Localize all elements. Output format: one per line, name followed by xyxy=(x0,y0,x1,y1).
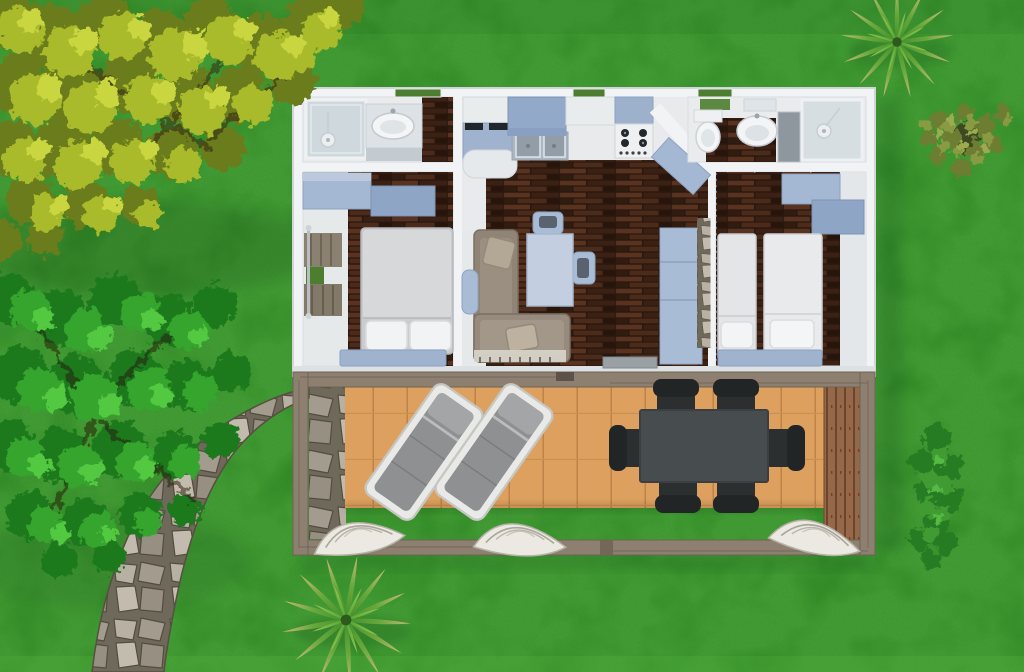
shower-divider xyxy=(778,112,800,162)
tall-cabinet-fridge xyxy=(660,228,702,364)
stove xyxy=(615,124,653,158)
kitchen-living xyxy=(462,97,712,368)
bed-bench-twin xyxy=(718,350,822,366)
doormat xyxy=(603,357,657,368)
window-bath-right xyxy=(698,89,732,97)
privacy-screen xyxy=(824,380,862,540)
window-kitchen xyxy=(573,89,605,97)
bedroom-master xyxy=(303,172,453,366)
double-bed xyxy=(361,228,453,354)
bathroom-left xyxy=(303,97,453,162)
bedroom-twin xyxy=(716,172,866,366)
bathroom-right xyxy=(688,97,866,162)
kitchen-sink xyxy=(512,132,568,160)
dining-table-outdoor xyxy=(640,410,768,482)
house xyxy=(293,88,875,376)
bathroom-sink xyxy=(366,104,422,161)
single-bed-2 xyxy=(764,234,822,360)
shower xyxy=(306,100,366,158)
pergola-post xyxy=(600,540,613,555)
toilet xyxy=(694,110,722,152)
stone-accent-wall xyxy=(697,218,711,348)
aerial-floor-plan-scene xyxy=(0,0,1024,672)
single-bed-1 xyxy=(718,234,756,360)
floor-plan-canvas xyxy=(0,0,1024,672)
side-shelf xyxy=(462,270,478,314)
bed-bench xyxy=(340,350,446,366)
terrace-step xyxy=(556,372,574,381)
shower-right xyxy=(802,100,862,160)
window-bath-left xyxy=(395,89,441,97)
